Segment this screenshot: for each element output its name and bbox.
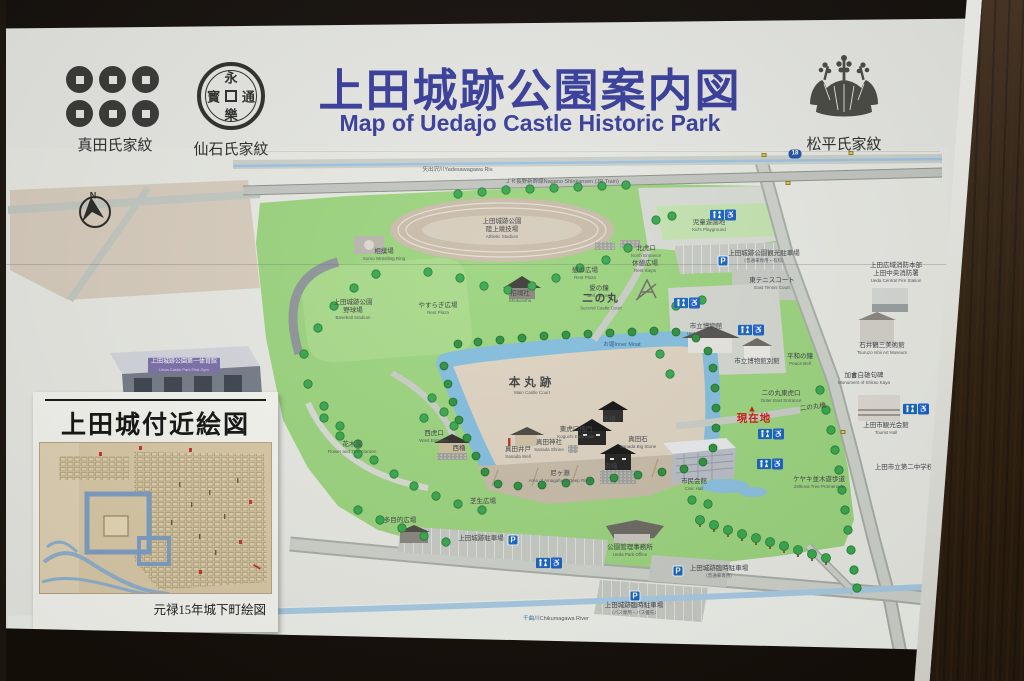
- coin-icon: [66, 66, 93, 93]
- sengoku-crest-label: 仙石氏家紋: [186, 138, 276, 159]
- coin-icon: [132, 66, 159, 93]
- sign-subtitle: Map of Uedajo Castle Historic Park: [285, 110, 775, 137]
- edo-period-town-map: [39, 442, 272, 594]
- inset-title: 上田城付近絵図: [45, 399, 266, 448]
- photo-frame-top: [0, 0, 1024, 30]
- coin-icon: [132, 100, 159, 127]
- matsudaira-paulownia-crest-icon: [808, 50, 880, 122]
- coin-char: 永: [224, 68, 237, 87]
- coin-icon: [66, 100, 93, 127]
- sanada-crest-label: 真田氏家紋: [64, 134, 166, 155]
- coin-icon: [99, 100, 126, 127]
- signboard-photo: 上田城跡公園案内図 Map of Uedajo Castle Historic …: [0, 0, 1024, 681]
- inset-historic-map-panel: 上田城付近絵図 元: [33, 392, 278, 632]
- photo-frame-left: [0, 0, 6, 681]
- sanada-clan-crest-icon: [66, 66, 168, 128]
- inset-caption: 元禄15年城下町絵図: [153, 599, 266, 618]
- sengoku-clan-crest-icon: 永 通 樂 寳: [197, 62, 265, 130]
- coin-char: 通: [242, 87, 255, 106]
- coin-char: 寳: [207, 87, 220, 106]
- coin-char: 樂: [224, 105, 237, 124]
- coin-icon: [99, 66, 126, 93]
- panel-seam: [240, 151, 940, 152]
- panel-seam: [6, 264, 954, 265]
